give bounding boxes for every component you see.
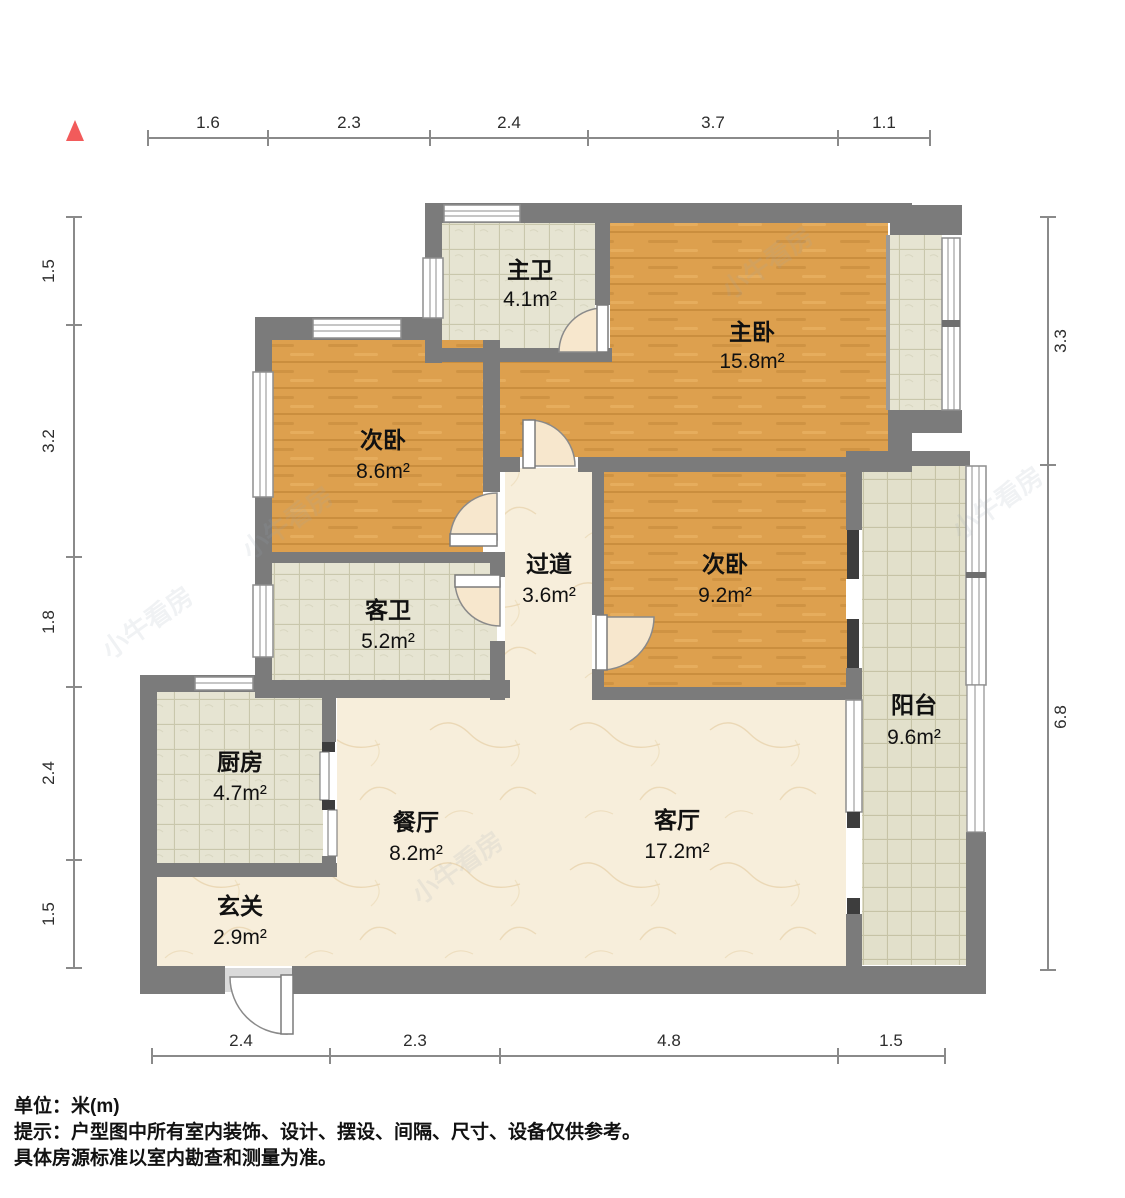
balcony-railing-icon [967, 685, 984, 832]
room-name: 餐厅 [393, 809, 439, 835]
floor-kitchen [157, 692, 323, 863]
room-name: 次卧 [360, 427, 406, 453]
ruler-bottom: 2.4 2.3 4.8 1.5 [152, 1031, 945, 1064]
room-area: 9.2m² [698, 584, 752, 607]
dim-label: 3.7 [701, 113, 725, 132]
window-guest-bath-left-icon [253, 585, 273, 657]
dim-label: 1.8 [39, 610, 58, 634]
watermark-text: 小牛看房 [96, 581, 198, 665]
dim-label: 1.5 [39, 902, 58, 926]
sliding-door-bedroom3-balcony-icon [846, 530, 862, 668]
dim-label: 2.4 [229, 1031, 253, 1050]
window-bay-icon [942, 238, 960, 410]
dim-label: 3.2 [39, 429, 58, 453]
room-name: 厨房 [217, 749, 263, 775]
note-unit: 单位：米(m) [14, 1094, 120, 1117]
room-area: 8.2m² [389, 842, 443, 865]
floor-plan-canvas: 主卫 4.1m² 主卧 15.8m² 次卧 8.6m² 客卫 5.2m² 过道 … [0, 0, 1125, 1198]
window-bedroom2-top-icon [313, 319, 401, 338]
room-name: 主卫 [507, 257, 553, 283]
dim-label: 1.5 [39, 259, 58, 283]
room-name: 客厅 [654, 807, 700, 833]
window-kitchen-top-icon [195, 677, 253, 690]
dim-label: 2.3 [337, 113, 361, 132]
ruler-right: 3.3 6.8 [1040, 217, 1070, 970]
floor-bay-window [890, 235, 942, 410]
dim-label: 3.3 [1051, 329, 1070, 353]
room-area: 5.2m² [361, 630, 415, 653]
sliding-door-living-balcony-icon [846, 812, 862, 914]
window-master-bath-top-icon [444, 205, 520, 222]
dim-label: 1.5 [879, 1031, 903, 1050]
ruler-left: 1.5 3.2 1.8 2.4 1.5 [39, 217, 82, 968]
room-name: 玄关 [217, 893, 263, 919]
room-area: 2.9m² [213, 926, 267, 949]
dim-label: 2.4 [497, 113, 521, 132]
note-tip-line2: 具体房源标准以室内勘查和测量为准。 [14, 1146, 337, 1169]
room-area: 17.2m² [644, 840, 709, 863]
north-arrow-icon [66, 120, 84, 141]
window-living-balcony-icon [846, 700, 862, 812]
dim-label: 4.8 [657, 1031, 681, 1050]
footnotes: 单位：米(m) 提示：户型图中所有室内装饰、设计、摆设、间隔、尺寸、设备仅供参考… [14, 1094, 641, 1169]
ruler-top: 1.6 2.3 2.4 3.7 1.1 [148, 113, 930, 146]
dim-label: 1.6 [196, 113, 220, 132]
room-area: 4.7m² [213, 782, 267, 805]
room-area: 4.1m² [503, 288, 557, 311]
dim-label: 2.3 [403, 1031, 427, 1050]
dim-label: 2.4 [39, 761, 58, 785]
room-name: 主卧 [729, 319, 775, 345]
door-entry-icon [225, 968, 293, 1034]
room-name: 次卧 [702, 551, 748, 577]
room-area: 3.6m² [522, 584, 576, 607]
sliding-door-kitchen-icon [320, 742, 337, 877]
floor-bedroom3 [604, 472, 848, 687]
floor-plan-page: 主卫 4.1m² 主卧 15.8m² 次卧 8.6m² 客卫 5.2m² 过道 … [0, 0, 1125, 1198]
window-bedroom2-left-icon [253, 372, 273, 497]
note-tip-line1: 提示：户型图中所有室内装饰、设计、摆设、间隔、尺寸、设备仅供参考。 [14, 1120, 641, 1143]
room-name: 过道 [526, 551, 572, 577]
room-area: 15.8m² [719, 350, 784, 373]
room-area: 8.6m² [356, 460, 410, 483]
dim-label: 6.8 [1051, 705, 1070, 729]
dim-label: 1.1 [872, 113, 896, 132]
room-area: 9.6m² [887, 726, 941, 749]
window-master-bath-left-icon [423, 258, 443, 318]
room-name: 阳台 [891, 692, 937, 718]
room-name: 客卫 [365, 597, 411, 623]
